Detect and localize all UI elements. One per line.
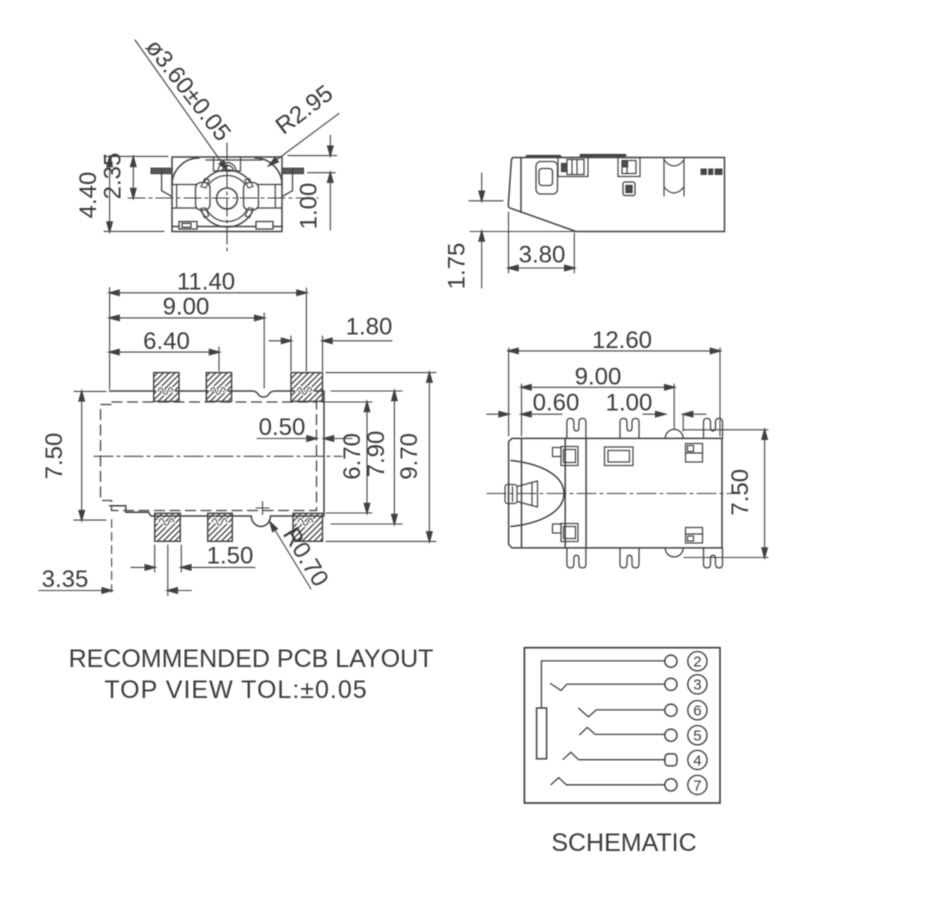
svg-text:1.80: 1.80	[346, 314, 393, 341]
svg-text:1.75: 1.75	[444, 243, 471, 290]
svg-text:5: 5	[693, 728, 701, 745]
svg-text:9.00: 9.00	[575, 363, 622, 390]
svg-text:1.00: 1.00	[606, 390, 653, 417]
svg-text:4: 4	[693, 752, 701, 769]
svg-text:2: 2	[693, 654, 701, 671]
svg-text:TOP VIEW TOL:±0.05: TOP VIEW TOL:±0.05	[104, 676, 367, 704]
svg-text:9.00: 9.00	[163, 294, 210, 321]
svg-text:7.50: 7.50	[727, 469, 754, 516]
svg-text:6: 6	[693, 703, 701, 720]
svg-text:11.40: 11.40	[177, 269, 235, 296]
svg-text:RECOMMENDED PCB LAYOUT: RECOMMENDED PCB LAYOUT	[69, 645, 434, 673]
svg-text:6.70: 6.70	[339, 433, 366, 480]
svg-text:7.90: 7.90	[363, 431, 390, 478]
svg-text:7.50: 7.50	[41, 433, 68, 480]
svg-text:7: 7	[693, 777, 701, 794]
svg-text:12.60: 12.60	[592, 327, 652, 354]
svg-text:2.35: 2.35	[100, 153, 127, 200]
svg-text:4.40: 4.40	[75, 172, 102, 219]
svg-text:1.00: 1.00	[296, 183, 323, 230]
svg-text:6.40: 6.40	[143, 328, 190, 355]
svg-text:0.60: 0.60	[533, 390, 580, 417]
svg-text:0.50: 0.50	[259, 414, 306, 441]
svg-text:3: 3	[693, 677, 701, 694]
svg-text:3.80: 3.80	[519, 242, 566, 269]
svg-text:1.50: 1.50	[207, 543, 254, 570]
svg-text:9.70: 9.70	[396, 433, 423, 480]
svg-text:3.35: 3.35	[42, 566, 89, 593]
svg-text:SCHEMATIC: SCHEMATIC	[551, 829, 696, 857]
